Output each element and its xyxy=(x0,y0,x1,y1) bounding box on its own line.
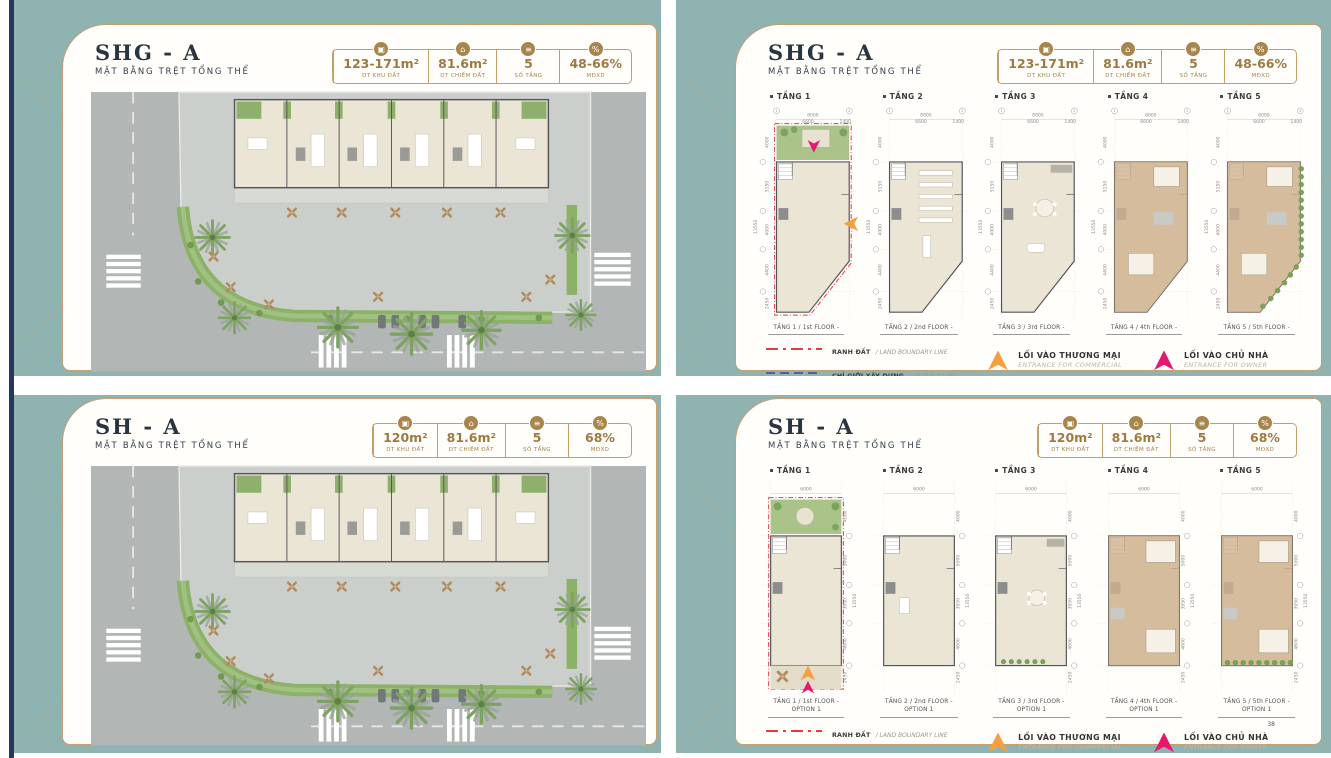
floor-plan-drawing: 6000 4000 5000 3950 4600 2450 13550 xyxy=(1202,476,1312,698)
svg-text:2450: 2450 xyxy=(765,297,771,309)
stats-group: ▣ 123-171m² DT KHU ĐẤT ⌂ 81.6m² DT CHIẾM… xyxy=(332,49,632,84)
stat-cell: ⌂ 81.6m² DT CHIẾM ĐẤT xyxy=(437,424,505,457)
svg-text:2450: 2450 xyxy=(878,297,884,309)
stat-value: 5 xyxy=(515,432,559,445)
stat-cell: ▣ 120m² DT KHU ĐẤT xyxy=(373,424,437,457)
legend: RANH ĐẤT / LAND BOUNDARY LINE CHỈ GIỚI X… xyxy=(736,335,1321,376)
floor-column: TẦNG 5 6000 xyxy=(1200,466,1313,718)
svg-text:4000: 4000 xyxy=(1215,136,1221,148)
svg-text:5150: 5150 xyxy=(1215,180,1221,192)
svg-text:6600: 6600 xyxy=(1140,119,1152,125)
legend-setback-line: CHỈ GIỚI XÂY DỰNG / SETBACK LINE xyxy=(766,363,956,376)
stat-value: 81.6m² xyxy=(438,58,487,71)
svg-text:3950: 3950 xyxy=(955,597,961,609)
svg-text:4000: 4000 xyxy=(765,223,771,235)
panel-header: SH - A MẶT BẰNG TRỆT TỔNG THỂ ▣ 120m² DT… xyxy=(63,399,656,460)
commercial-entrance-icon xyxy=(986,733,1010,753)
svg-text:2450: 2450 xyxy=(1293,671,1299,683)
svg-text:1: 1 xyxy=(1114,109,1116,113)
floor-caption: TẦNG 4 / 4th FLOOR - xyxy=(1106,324,1182,336)
stat-label: DT KHU ĐẤT xyxy=(1008,73,1084,79)
svg-text:8000: 8000 xyxy=(1258,112,1270,118)
svg-text:4400: 4400 xyxy=(1215,264,1221,276)
svg-text:13550: 13550 xyxy=(1091,219,1097,233)
svg-text:4400: 4400 xyxy=(878,264,884,276)
page-subtitle: MẶT BẰNG TRỆT TỔNG THỂ xyxy=(95,67,250,77)
stat-value: 120m² xyxy=(1048,432,1093,445)
floor-count-icon: ≡ xyxy=(520,41,536,57)
svg-text:6000: 6000 xyxy=(801,486,813,492)
legend-owner-entrance: LỐI VÀO CHỦ NHÀENTRANCE FOR OWNER xyxy=(1152,351,1268,371)
quadrant-sh-floorplans: SH - A MẶT BẰNG TRỆT TỔNG THỂ ▣ 120m² DT… xyxy=(676,395,1331,753)
site-plan-area xyxy=(63,86,656,377)
label-bullet xyxy=(995,95,998,98)
stat-label: MĐXD xyxy=(1234,73,1287,79)
page-title: SH - A xyxy=(95,416,250,437)
label-bullet xyxy=(1108,95,1111,98)
floor-count-icon: ≡ xyxy=(1194,415,1210,431)
quadrant-shg-siteplan: SHG - A MẶT BẰNG TRỆT TỔNG THỂ ▣ 123-171… xyxy=(14,0,661,376)
floor-plans-row: TẦNG 1 6000 xyxy=(736,460,1321,718)
stat-label: DT CHIẾM ĐẤT xyxy=(1112,447,1161,453)
stat-label: DT KHU ĐẤT xyxy=(343,73,419,79)
stat-label: DT CHIẾM ĐẤT xyxy=(447,447,496,453)
site-plan-drawing xyxy=(91,464,646,747)
svg-text:2450: 2450 xyxy=(990,297,996,309)
stat-cell: % 48-66% MĐXD xyxy=(559,50,631,83)
stat-label: MĐXD xyxy=(1243,447,1287,453)
stats-group: ▣ 123-171m² DT KHU ĐẤT ⌂ 81.6m² DT CHIẾM… xyxy=(997,49,1297,84)
floor-plan-drawing: 12 8000 6600 1400 4000 5150 4000 4400 24… xyxy=(976,102,1086,324)
floor-plan-drawing: 12 8000 6600 1400 4000 5150 4000 4400 24… xyxy=(1202,102,1312,324)
floor-plan-drawing: 12 8000 6600 1400 4000 5150 4000 4400 24… xyxy=(751,102,861,324)
stat-value: 68% xyxy=(1243,432,1287,445)
boundary-line-icon xyxy=(766,347,822,351)
svg-text:6600: 6600 xyxy=(1253,119,1265,125)
legend-commercial-entrance: LỐI VÀO THƯƠNG MẠIENTRANCE FOR COMMERCIA… xyxy=(986,733,1122,753)
svg-text:4600: 4600 xyxy=(1180,638,1186,650)
floor-column: TẦNG 1 6000 xyxy=(750,466,863,718)
stat-label: MĐXD xyxy=(569,73,622,79)
floor-caption: TẦNG 2 / 2nd FLOOR -OPTION 1 xyxy=(880,698,958,718)
legend-boundary-line: RANH ĐẤT / LAND BOUNDARY LINE xyxy=(766,339,956,358)
svg-text:1400: 1400 xyxy=(1065,119,1077,125)
stat-value: 123-171m² xyxy=(1008,58,1084,71)
svg-text:4600: 4600 xyxy=(1293,638,1299,650)
svg-text:2: 2 xyxy=(849,109,851,113)
stat-cell: ⌂ 81.6m² DT CHIẾM ĐẤT xyxy=(428,50,496,83)
floor-column: TẦNG 2 6000 xyxy=(863,466,976,718)
legend: RANH ĐẤT / LAND BOUNDARY LINE CHỈ GIỚI X… xyxy=(736,718,1321,753)
density-icon: % xyxy=(592,415,608,431)
stat-cell: ⌂ 81.6m² DT CHIẾM ĐẤT xyxy=(1093,50,1161,83)
title-block: SHG - A MẶT BẰNG TRỆT TỔNG THỂ xyxy=(768,42,923,77)
stats-group: ▣ 120m² DT KHU ĐẤT ⌂ 81.6m² DT CHIẾM ĐẤT… xyxy=(1037,423,1297,458)
quadrant-sh-siteplan: SH - A MẶT BẰNG TRỆT TỔNG THỂ ▣ 120m² DT… xyxy=(14,395,661,753)
svg-text:6000: 6000 xyxy=(1251,486,1263,492)
svg-text:2: 2 xyxy=(1074,109,1076,113)
svg-text:5000: 5000 xyxy=(955,554,961,566)
svg-text:2450: 2450 xyxy=(1103,297,1109,309)
stat-value: 5 xyxy=(1171,58,1215,71)
stat-value: 81.6m² xyxy=(447,432,496,445)
floor-label: TẦNG 5 xyxy=(1220,92,1261,101)
page-title: SHG - A xyxy=(768,42,923,63)
svg-text:4000: 4000 xyxy=(990,136,996,148)
legend-owner-entrance: LỐI VÀO CHỦ NHÀENTRANCE FOR OWNER xyxy=(1152,733,1268,753)
stat-value: 120m² xyxy=(383,432,428,445)
svg-text:2450: 2450 xyxy=(1180,671,1186,683)
svg-text:13550: 13550 xyxy=(1190,593,1196,607)
svg-text:4000: 4000 xyxy=(878,136,884,148)
svg-text:2: 2 xyxy=(1186,109,1188,113)
panel-shg-floorplans: SHG - A MẶT BẰNG TRỆT TỔNG THỂ ▣ 123-171… xyxy=(735,24,1322,371)
svg-text:8000: 8000 xyxy=(807,112,819,118)
stat-label: DT KHU ĐẤT xyxy=(1048,447,1093,453)
stat-cell: ≡ 5 SỐ TẦNG xyxy=(1170,424,1233,457)
svg-text:4000: 4000 xyxy=(1180,510,1186,522)
svg-text:6600: 6600 xyxy=(1028,119,1040,125)
svg-text:5000: 5000 xyxy=(1293,554,1299,566)
stat-value: 5 xyxy=(506,58,550,71)
owner-entrance-icon xyxy=(1152,351,1176,371)
area-icon: ▣ xyxy=(1062,415,1078,431)
svg-text:2: 2 xyxy=(961,109,963,113)
svg-text:1: 1 xyxy=(776,109,778,113)
svg-text:1: 1 xyxy=(1226,109,1228,113)
stat-cell: ≡ 5 SỐ TẦNG xyxy=(505,424,568,457)
density-icon: % xyxy=(1253,41,1269,57)
floor-plan-drawing: 6000 4000 5000 3950 4600 2450 13550 xyxy=(1089,476,1199,698)
svg-text:4000: 4000 xyxy=(1103,223,1109,235)
legend-lines: RANH ĐẤT / LAND BOUNDARY LINE CHỈ GIỚI X… xyxy=(766,339,956,376)
floor-caption: TẦNG 4 / 4th FLOOR -OPTION 1 xyxy=(1106,698,1182,718)
brochure-page: SHG - A MẶT BẰNG TRỆT TỔNG THỂ ▣ 123-171… xyxy=(0,0,1331,758)
svg-text:8000: 8000 xyxy=(1033,112,1045,118)
footprint-icon: ⌂ xyxy=(1128,415,1144,431)
stats-group: ▣ 120m² DT KHU ĐẤT ⌂ 81.6m² DT CHIẾM ĐẤT… xyxy=(372,423,632,458)
svg-text:4000: 4000 xyxy=(1103,136,1109,148)
stat-value: 48-66% xyxy=(1234,58,1287,71)
svg-text:6000: 6000 xyxy=(913,486,925,492)
panel-header: SH - A MẶT BẰNG TRỆT TỔNG THỂ ▣ 120m² DT… xyxy=(736,399,1321,460)
svg-text:4000: 4000 xyxy=(878,223,884,235)
floor-column: TẦNG 3 6000 xyxy=(975,466,1088,718)
svg-text:13550: 13550 xyxy=(978,219,984,233)
owner-entrance-icon xyxy=(1152,733,1176,753)
label-bullet xyxy=(770,95,773,98)
svg-text:6600: 6600 xyxy=(803,119,815,125)
quadrant-shg-floorplans: SHG - A MẶT BẰNG TRỆT TỔNG THỂ ▣ 123-171… xyxy=(676,0,1331,376)
svg-text:4000: 4000 xyxy=(990,223,996,235)
stat-label: DT CHIẾM ĐẤT xyxy=(438,73,487,79)
floor-column: TẦNG 4 6000 xyxy=(1088,466,1201,718)
svg-text:5150: 5150 xyxy=(1103,180,1109,192)
floor-caption: TẦNG 1 / 1st FLOOR -OPTION 1 xyxy=(768,698,844,718)
legend-boundary-line: RANH ĐẤT / LAND BOUNDARY LINE xyxy=(766,722,956,741)
svg-text:4000: 4000 xyxy=(1215,223,1221,235)
setback-line-icon xyxy=(766,371,822,375)
svg-text:4000: 4000 xyxy=(1293,510,1299,522)
floor-caption: TẦNG 3 / 3rd FLOOR - xyxy=(993,324,1069,336)
svg-text:4400: 4400 xyxy=(990,264,996,276)
page-subtitle: MẶT BẰNG TRỆT TỔNG THỂ xyxy=(768,67,923,77)
svg-text:1: 1 xyxy=(888,109,890,113)
svg-text:13550: 13550 xyxy=(1078,593,1084,607)
floor-label: TẦNG 1 xyxy=(770,466,811,475)
floor-column: TẦNG 2 12 8 xyxy=(863,92,976,336)
floor-label: TẦNG 1 xyxy=(770,92,811,101)
svg-text:1400: 1400 xyxy=(1290,119,1302,125)
title-block: SHG - A MẶT BẰNG TRỆT TỔNG THỂ xyxy=(95,42,250,77)
svg-text:8000: 8000 xyxy=(920,112,932,118)
svg-text:6000: 6000 xyxy=(1026,486,1038,492)
footprint-icon: ⌂ xyxy=(455,41,471,57)
floor-count-icon: ≡ xyxy=(1185,41,1201,57)
stat-cell: ≡ 5 SỐ TẦNG xyxy=(1161,50,1224,83)
legend-commercial-entrance: LỐI VÀO THƯƠNG MẠIENTRANCE FOR COMMERCIA… xyxy=(986,351,1122,371)
page-title: SH - A xyxy=(768,416,923,437)
floor-label: TẦNG 2 xyxy=(883,92,924,101)
stat-label: SỐ TẦNG xyxy=(515,447,559,453)
svg-text:3950: 3950 xyxy=(1293,597,1299,609)
title-block: SH - A MẶT BẰNG TRỆT TỔNG THỂ xyxy=(95,416,250,451)
legend-setback-line: CHỈ GIỚI XÂY DỰNG / SETBACK LINE xyxy=(766,746,956,753)
page-number: 38 xyxy=(1267,721,1275,728)
panel-header: SHG - A MẶT BẰNG TRỆT TỔNG THỂ ▣ 123-171… xyxy=(63,25,656,86)
floor-caption: TẦNG 1 / 1st FLOOR - xyxy=(768,324,844,336)
panel-header: SHG - A MẶT BẰNG TRỆT TỔNG THỂ ▣ 123-171… xyxy=(736,25,1321,86)
boundary-line-icon xyxy=(766,729,822,733)
stat-label: SỐ TẦNG xyxy=(1180,447,1224,453)
floor-label: TẦNG 3 xyxy=(995,466,1036,475)
floor-column: TẦNG 1 12 8 xyxy=(750,92,863,336)
floor-column: TẦNG 4 12 8 xyxy=(1088,92,1201,336)
stat-cell: % 68% MĐXD xyxy=(1233,424,1296,457)
floor-plan-drawing: 12 8000 6600 1400 4000 5150 4000 4400 24… xyxy=(1089,102,1199,324)
area-icon: ▣ xyxy=(397,415,413,431)
site-plan-drawing xyxy=(91,90,646,373)
floor-column: TẦNG 5 12 8 xyxy=(1200,92,1313,336)
panel-shg-siteplan: SHG - A MẶT BẰNG TRỆT TỔNG THỂ ▣ 123-171… xyxy=(62,24,657,371)
svg-text:4000: 4000 xyxy=(955,510,961,522)
svg-text:4000: 4000 xyxy=(1068,510,1074,522)
label-bullet xyxy=(1108,469,1111,472)
floor-label: TẦNG 3 xyxy=(995,92,1036,101)
svg-text:4600: 4600 xyxy=(1068,638,1074,650)
stat-label: SỐ TẦNG xyxy=(1171,73,1215,79)
footprint-icon: ⌂ xyxy=(463,415,479,431)
floor-plans-row: TẦNG 1 12 8 xyxy=(736,86,1321,336)
label-bullet xyxy=(995,469,998,472)
svg-text:5150: 5150 xyxy=(878,180,884,192)
svg-text:3950: 3950 xyxy=(1068,597,1074,609)
svg-text:5150: 5150 xyxy=(765,180,771,192)
svg-text:13550: 13550 xyxy=(852,593,858,607)
floor-label: TẦNG 5 xyxy=(1220,466,1261,475)
page-title: SHG - A xyxy=(95,42,250,63)
svg-text:5150: 5150 xyxy=(990,180,996,192)
floor-plan-drawing: 6000 4000 5000 3950 4600 2450 13550 xyxy=(864,476,974,698)
stat-label: DT CHIẾM ĐẤT xyxy=(1103,73,1152,79)
title-block: SH - A MẶT BẰNG TRỆT TỔNG THỂ xyxy=(768,416,923,451)
label-bullet xyxy=(1220,469,1223,472)
stat-cell: ⌂ 81.6m² DT CHIẾM ĐẤT xyxy=(1102,424,1170,457)
svg-text:1400: 1400 xyxy=(1178,119,1190,125)
area-icon: ▣ xyxy=(1038,41,1054,57)
svg-text:3950: 3950 xyxy=(1180,597,1186,609)
stat-label: MĐXD xyxy=(578,447,622,453)
svg-text:1400: 1400 xyxy=(952,119,964,125)
label-bullet xyxy=(1220,95,1223,98)
density-icon: % xyxy=(1257,415,1273,431)
stat-cell: % 68% MĐXD xyxy=(568,424,631,457)
stat-value: 123-171m² xyxy=(343,58,419,71)
svg-text:5000: 5000 xyxy=(1180,554,1186,566)
stat-value: 48-66% xyxy=(569,58,622,71)
floor-caption: TẦNG 3 / 3rd FLOOR -OPTION 1 xyxy=(993,698,1069,718)
site-plan-area xyxy=(63,460,656,754)
legend-lines: RANH ĐẤT / LAND BOUNDARY LINE CHỈ GIỚI X… xyxy=(766,722,956,753)
svg-text:8000: 8000 xyxy=(1145,112,1157,118)
svg-text:13550: 13550 xyxy=(965,593,971,607)
stat-cell: ▣ 123-171m² DT KHU ĐẤT xyxy=(333,50,428,83)
commercial-entrance-icon xyxy=(986,351,1010,371)
stat-label: SỐ TẦNG xyxy=(506,73,550,79)
page-subtitle: MẶT BẰNG TRỆT TỔNG THỂ xyxy=(768,441,923,451)
floor-label: TẦNG 4 xyxy=(1108,92,1149,101)
label-bullet xyxy=(883,469,886,472)
floor-label: TẦNG 4 xyxy=(1108,466,1149,475)
svg-text:13550: 13550 xyxy=(1204,219,1210,233)
stat-cell: ≡ 5 SỐ TẦNG xyxy=(496,50,559,83)
label-bullet xyxy=(883,95,886,98)
svg-text:5000: 5000 xyxy=(1068,554,1074,566)
panel-sh-floorplans: SH - A MẶT BẰNG TRỆT TỔNG THỂ ▣ 120m² DT… xyxy=(735,398,1322,745)
area-icon: ▣ xyxy=(373,41,389,57)
footprint-icon: ⌂ xyxy=(1120,41,1136,57)
svg-text:4600: 4600 xyxy=(955,638,961,650)
stat-value: 5 xyxy=(1180,432,1224,445)
floor-plan-drawing: 6000 4000 5000 3950 4600 2450 13550 xyxy=(976,476,1086,698)
svg-text:2450: 2450 xyxy=(1215,297,1221,309)
floor-caption: TẦNG 2 / 2nd FLOOR - xyxy=(880,324,958,336)
stat-value: 68% xyxy=(578,432,622,445)
stat-cell: ▣ 120m² DT KHU ĐẤT xyxy=(1038,424,1102,457)
svg-text:13550: 13550 xyxy=(866,219,872,233)
floor-caption: TẦNG 5 / 5th FLOOR - xyxy=(1218,324,1294,336)
stat-value: 81.6m² xyxy=(1103,58,1152,71)
svg-text:4400: 4400 xyxy=(765,264,771,276)
svg-text:2450: 2450 xyxy=(955,671,961,683)
svg-text:2450: 2450 xyxy=(1068,671,1074,683)
floor-caption: TẦNG 5 / 5th FLOOR -OPTION 1 xyxy=(1218,698,1294,718)
svg-text:2: 2 xyxy=(1299,109,1301,113)
stat-cell: ▣ 123-171m² DT KHU ĐẤT xyxy=(998,50,1093,83)
floor-label: TẦNG 2 xyxy=(883,466,924,475)
stat-cell: % 48-66% MĐXD xyxy=(1224,50,1296,83)
page-subtitle: MẶT BẰNG TRỆT TỔNG THỂ xyxy=(95,441,250,451)
floor-plan-drawing: 6000 4000 5000 3950 4600 2450 13550 xyxy=(751,476,861,698)
panel-sh-siteplan: SH - A MẶT BẰNG TRỆT TỔNG THỂ ▣ 120m² DT… xyxy=(62,398,657,745)
svg-text:13550: 13550 xyxy=(1303,593,1309,607)
floor-count-icon: ≡ xyxy=(529,415,545,431)
svg-text:1400: 1400 xyxy=(840,119,852,125)
stat-label: DT KHU ĐẤT xyxy=(383,447,428,453)
svg-text:6600: 6600 xyxy=(915,119,927,125)
label-bullet xyxy=(770,469,773,472)
density-icon: % xyxy=(588,41,604,57)
svg-text:6000: 6000 xyxy=(1138,486,1150,492)
floor-plan-drawing: 12 8000 6600 1400 4000 5150 4000 4400 24… xyxy=(864,102,974,324)
svg-text:4400: 4400 xyxy=(1103,264,1109,276)
floor-column: TẦNG 3 12 8 xyxy=(975,92,1088,336)
stat-value: 81.6m² xyxy=(1112,432,1161,445)
svg-text:4000: 4000 xyxy=(765,136,771,148)
svg-text:13550: 13550 xyxy=(753,219,759,233)
svg-text:1: 1 xyxy=(1001,109,1003,113)
